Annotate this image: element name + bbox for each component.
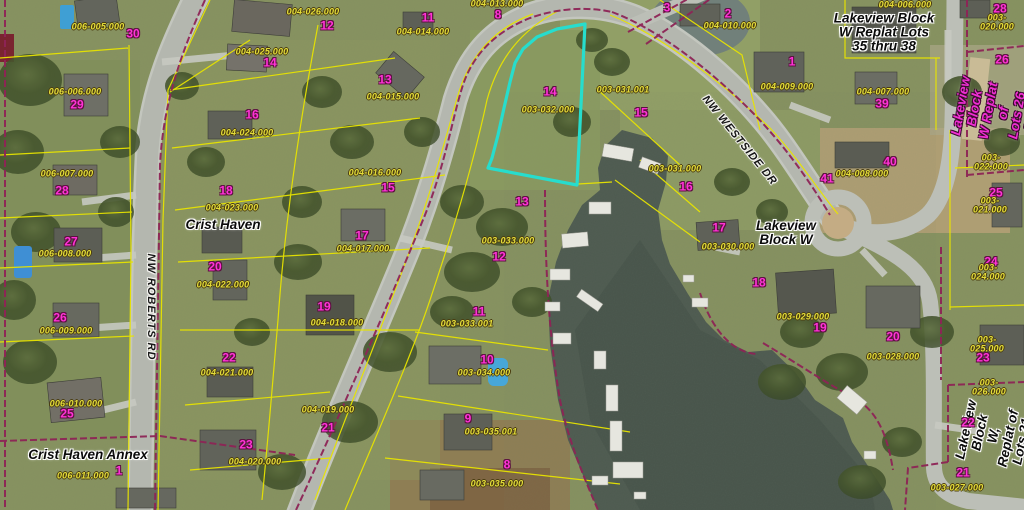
parcel-map-canvas[interactable]: NW ROBERTS RDNW WESTSIDE DRCrist HavenCr… xyxy=(0,0,1024,510)
aerial-layer xyxy=(0,0,1024,510)
culdesac-island xyxy=(822,207,854,239)
